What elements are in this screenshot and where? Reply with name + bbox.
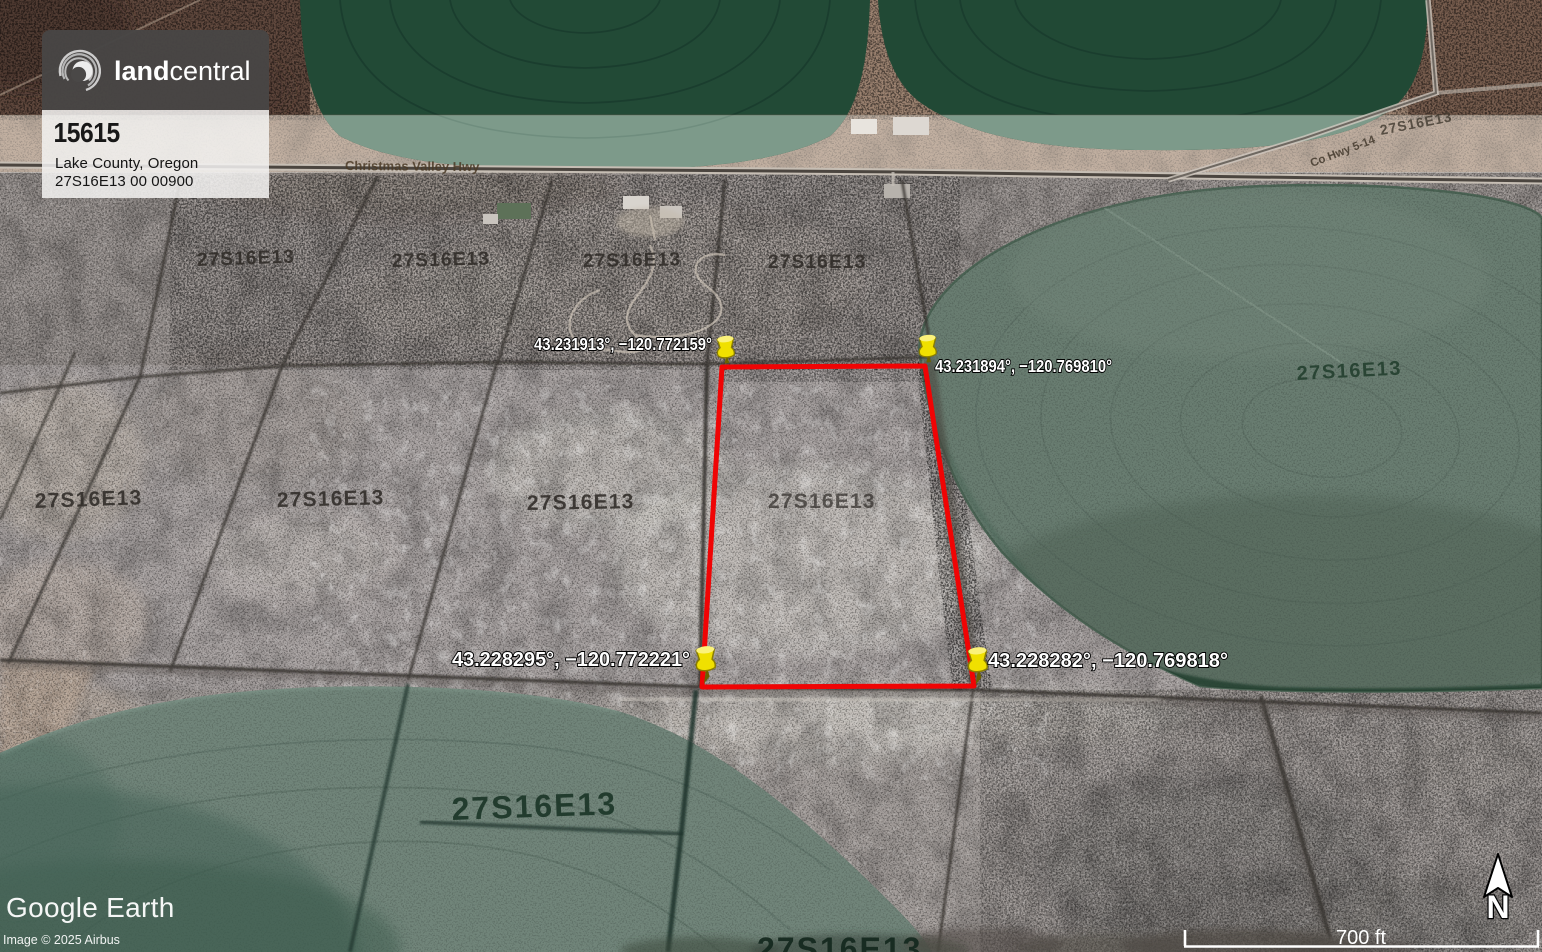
svg-text:27S16E13: 27S16E13 — [196, 247, 295, 271]
svg-text:27S16E13: 27S16E13 — [451, 785, 618, 827]
svg-text:700 ft: 700 ft — [1336, 927, 1386, 949]
svg-text:27S16E13: 27S16E13 — [757, 931, 922, 952]
svg-text:27S16E13: 27S16E13 — [527, 490, 635, 515]
svg-text:N: N — [1486, 889, 1509, 925]
svg-text:27S16E13: 27S16E13 — [768, 490, 876, 513]
svg-text:27S16E13: 27S16E13 — [392, 248, 491, 272]
svg-text:Christmas Valley Hwy: Christmas Valley Hwy — [345, 158, 480, 174]
svg-text:43.228295°, −120.772221°: 43.228295°, −120.772221° — [452, 649, 690, 671]
svg-text:43.231913°, −120.772159°: 43.231913°, −120.772159° — [534, 334, 712, 354]
svg-text:27S16E13: 27S16E13 — [583, 249, 682, 272]
svg-text:43.228282°, −120.769818°: 43.228282°, −120.769818° — [988, 650, 1228, 672]
svg-text:27S16E13: 27S16E13 — [768, 252, 866, 273]
svg-text:27S16E13: 27S16E13 — [34, 486, 142, 513]
svg-text:43.231894°, −120.769810°: 43.231894°, −120.769810° — [935, 356, 1112, 376]
svg-text:27S16E13: 27S16E13 — [277, 486, 385, 512]
